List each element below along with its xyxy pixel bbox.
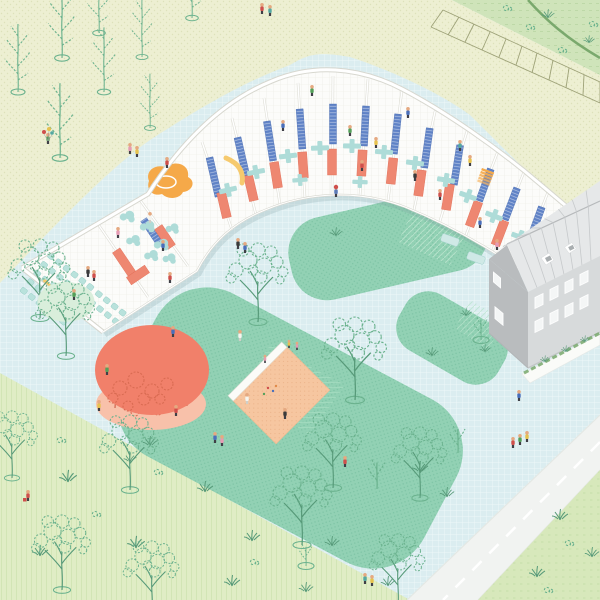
illustration-canvas [0, 0, 600, 600]
red-bag [23, 498, 27, 502]
site-illustration [0, 0, 600, 600]
round-canopy [95, 325, 209, 430]
